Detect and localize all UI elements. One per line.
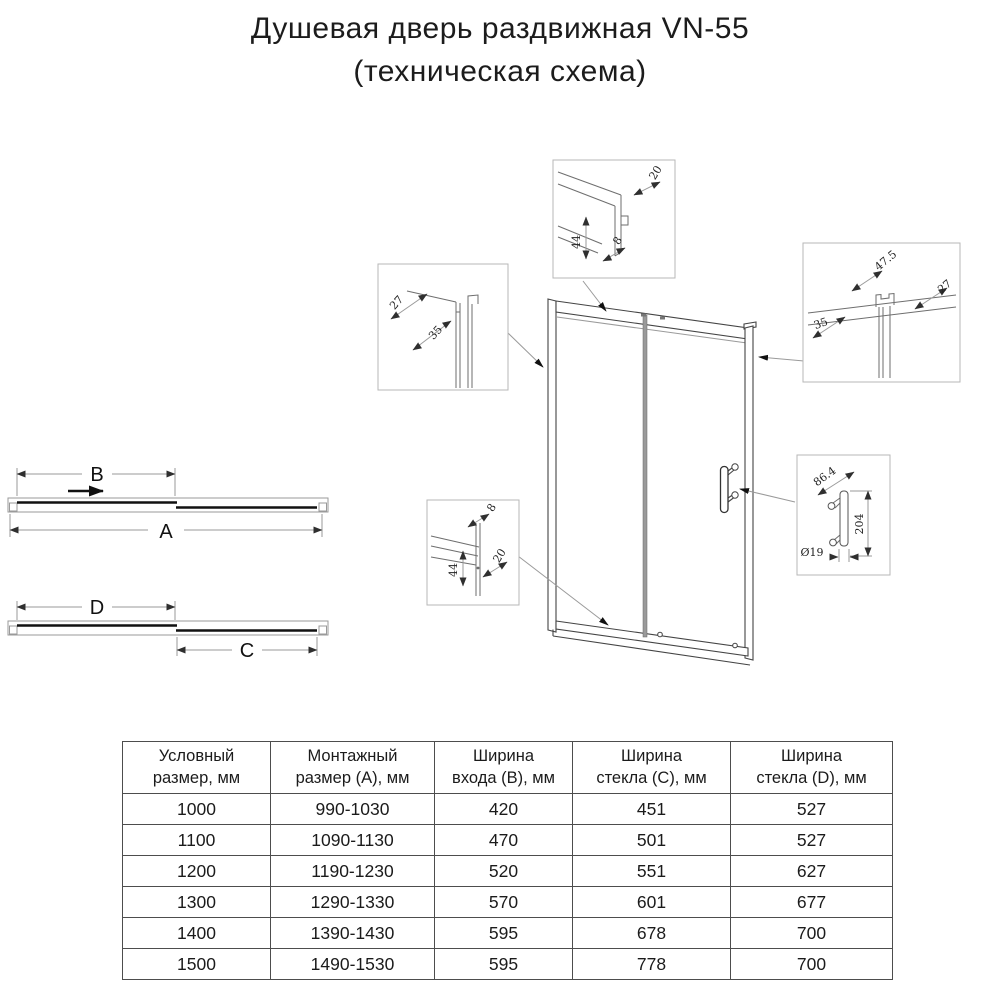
- table-cell: 451: [573, 794, 731, 825]
- table-cell: 1490-1530: [271, 949, 435, 980]
- table-row: 13001290-1330570601677: [123, 887, 893, 918]
- table-cell: 1200: [123, 856, 271, 887]
- table-header-cell: Условный размер, мм: [123, 742, 271, 794]
- table-header-cell: Ширина входа (B), мм: [435, 742, 573, 794]
- callout-top-glass-joint: 47.5 27 35: [803, 243, 960, 382]
- bottom-roller-knob: [733, 643, 738, 648]
- door-middle-divider: [643, 315, 647, 637]
- leader-top-glass-joint: [759, 357, 804, 361]
- dim-44: 44: [447, 563, 460, 577]
- table-cell: 1000: [123, 794, 271, 825]
- dim-label-fixed-glass: C: [240, 640, 254, 662]
- bottom-roller-knob: [658, 632, 663, 637]
- table-cell: 1100: [123, 825, 271, 856]
- table-row: 14001390-1430595678700: [123, 918, 893, 949]
- top-rail-clip: [641, 314, 646, 317]
- table-row: 1000990-1030420451527: [123, 794, 893, 825]
- table-cell: 627: [731, 856, 893, 887]
- table-cell: 601: [573, 887, 731, 918]
- callout-handle: 86.4 204 Ø19: [797, 455, 890, 575]
- table-cell: 520: [435, 856, 573, 887]
- table-cell: 420: [435, 794, 573, 825]
- table-cell: 1300: [123, 887, 271, 918]
- leader-bottom-joint: [518, 556, 608, 625]
- table-cell: 700: [731, 918, 893, 949]
- table-cell: 700: [731, 949, 893, 980]
- table-header-cell: Монтажный размер (A), мм: [271, 742, 435, 794]
- door-right-frame: [745, 326, 753, 660]
- table-cell: 678: [573, 918, 731, 949]
- dim-diameter-19: Ø19: [800, 546, 823, 559]
- callout-top-rail-joint: 44 20 8: [553, 160, 675, 278]
- size-table-body: 1000990-103042045152711001090-1130470501…: [123, 794, 893, 980]
- dim-44: 44: [570, 235, 583, 249]
- table-cell: 778: [573, 949, 731, 980]
- dim-204: 204: [853, 514, 866, 535]
- table-row: 11001090-1130470501527: [123, 825, 893, 856]
- table-cell: 570: [435, 887, 573, 918]
- leader-wall-profile: [508, 333, 543, 367]
- table-cell: 677: [731, 887, 893, 918]
- table-cell: 527: [731, 794, 893, 825]
- technical-drawing: B A D C: [0, 0, 1000, 740]
- plan-view-closed: D C: [8, 597, 328, 662]
- door-drawing: [548, 299, 756, 665]
- table-cell: 1090-1130: [271, 825, 435, 856]
- callout-wall-profile: 27 35: [378, 264, 508, 390]
- dim-label-total-width: A: [159, 521, 173, 543]
- size-table: Условный размер, ммМонтажный размер (A),…: [122, 741, 893, 980]
- table-cell: 595: [435, 918, 573, 949]
- table-cell: 1190-1230: [271, 856, 435, 887]
- top-rail-clip: [660, 317, 665, 320]
- door-top-rail: [556, 301, 748, 339]
- table-cell: 551: [573, 856, 731, 887]
- dim-label-entry-width: B: [90, 464, 103, 486]
- table-cell: 1290-1330: [271, 887, 435, 918]
- table-cell: 501: [573, 825, 731, 856]
- dim-label-door-glass: D: [90, 597, 104, 619]
- table-header-cell: Ширина стекла (D), мм: [731, 742, 893, 794]
- size-table-head: Условный размер, ммМонтажный размер (A),…: [123, 742, 893, 794]
- table-cell: 1390-1430: [271, 918, 435, 949]
- table-header-row: Условный размер, ммМонтажный размер (A),…: [123, 742, 893, 794]
- callout-bottom-rail-joint: 8 20 44: [427, 500, 519, 605]
- table-cell: 990-1030: [271, 794, 435, 825]
- table-row: 12001190-1230520551627: [123, 856, 893, 887]
- table-cell: 595: [435, 949, 573, 980]
- table-cell: 1400: [123, 918, 271, 949]
- plan-view-open: B A: [8, 464, 328, 543]
- table-cell: 470: [435, 825, 573, 856]
- table-cell: 1500: [123, 949, 271, 980]
- table-cell: 527: [731, 825, 893, 856]
- door-handle: [721, 464, 739, 513]
- table-row: 15001490-1530595778700: [123, 949, 893, 980]
- table-header-cell: Ширина стекла (C), мм: [573, 742, 731, 794]
